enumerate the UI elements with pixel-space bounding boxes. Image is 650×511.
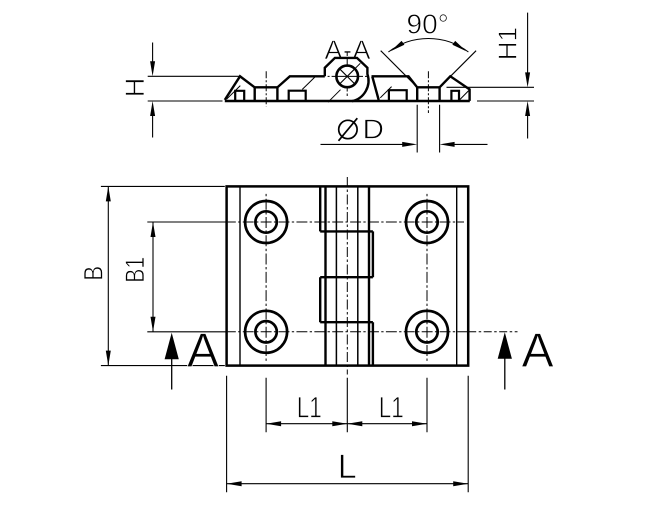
svg-text:L1: L1 xyxy=(379,392,404,425)
svg-text:A: A xyxy=(522,324,554,377)
svg-text:L1: L1 xyxy=(297,392,322,425)
svg-text:D: D xyxy=(363,114,385,145)
svg-text:B1: B1 xyxy=(120,257,150,283)
svg-text:90°: 90° xyxy=(407,9,449,40)
svg-text:B: B xyxy=(79,266,109,281)
svg-text:H: H xyxy=(120,78,150,98)
svg-text:A: A xyxy=(187,324,219,377)
svg-text:L: L xyxy=(338,448,357,486)
svg-text:H1: H1 xyxy=(492,27,522,60)
